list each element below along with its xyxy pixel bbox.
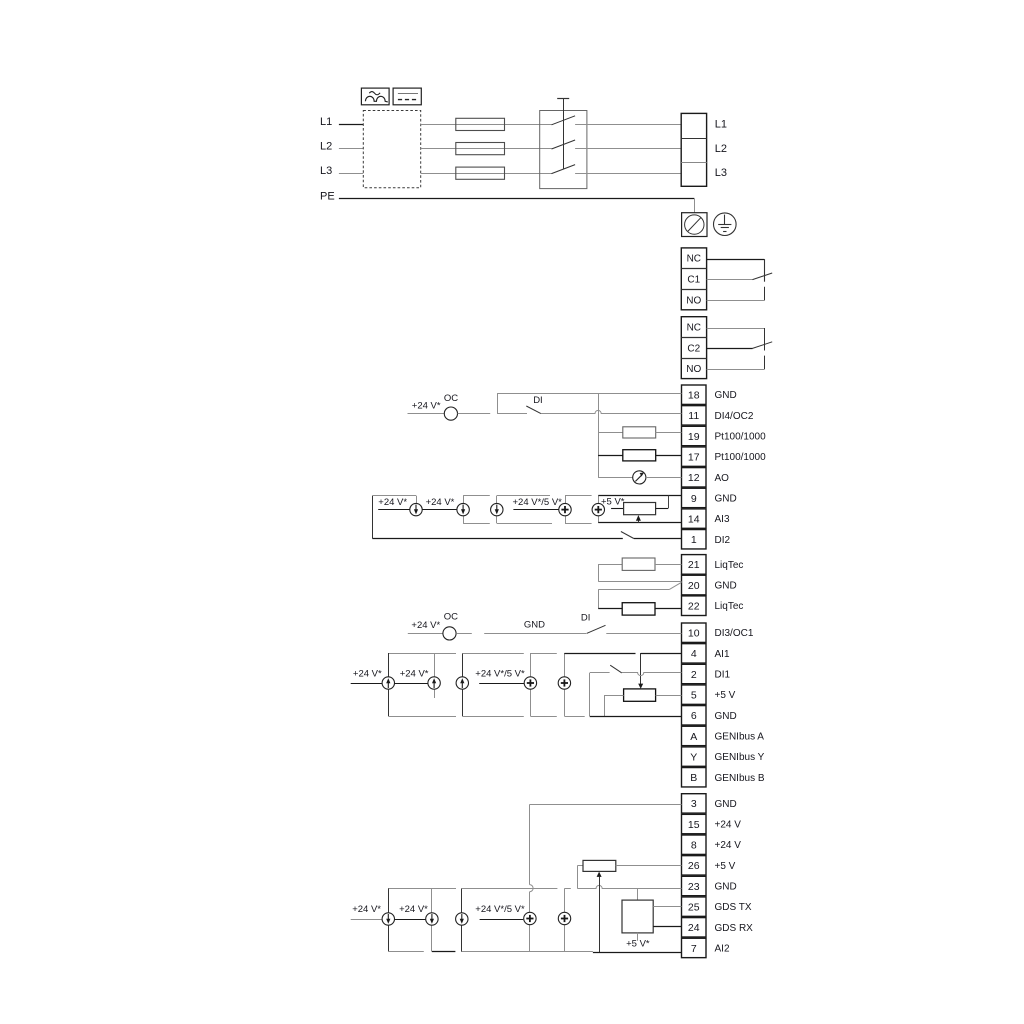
svg-text:+24 V*: +24 V*: [412, 400, 441, 411]
svg-text:10: 10: [688, 628, 700, 640]
svg-text:+24 V: +24 V: [715, 820, 742, 831]
svg-text:L3: L3: [320, 165, 332, 177]
svg-text:GDS RX: GDS RX: [715, 923, 754, 934]
svg-text:14: 14: [688, 513, 700, 525]
svg-text:3: 3: [691, 798, 697, 810]
svg-text:20: 20: [688, 580, 700, 592]
svg-text:L2: L2: [715, 143, 727, 155]
svg-text:23: 23: [688, 881, 700, 893]
svg-text:+24 V*/5 V*: +24 V*/5 V*: [513, 497, 563, 508]
svg-text:GENIbus A: GENIbus A: [715, 731, 765, 742]
svg-text:17: 17: [688, 451, 700, 463]
svg-text:L2: L2: [320, 140, 332, 152]
svg-text:A: A: [690, 731, 697, 743]
svg-text:DI1: DI1: [715, 670, 731, 681]
svg-text:C2: C2: [687, 343, 700, 354]
svg-text:25: 25: [688, 901, 700, 913]
svg-text:+5 V: +5 V: [715, 861, 736, 872]
svg-text:AI2: AI2: [715, 943, 730, 954]
svg-text:15: 15: [688, 819, 700, 831]
svg-text:5: 5: [691, 689, 697, 701]
svg-text:19: 19: [688, 431, 700, 443]
svg-text:NC: NC: [687, 254, 701, 265]
svg-text:OC: OC: [444, 611, 458, 622]
svg-text:NC: NC: [687, 323, 701, 334]
svg-text:C1: C1: [687, 275, 700, 286]
svg-text:GND: GND: [715, 493, 737, 504]
svg-text:12: 12: [688, 472, 700, 484]
svg-text:+24 V*: +24 V*: [352, 904, 381, 915]
svg-text:1: 1: [691, 534, 697, 546]
svg-text:GND: GND: [524, 619, 545, 630]
svg-text:+24 V*: +24 V*: [399, 904, 428, 915]
svg-text:GDS TX: GDS TX: [715, 902, 752, 913]
svg-text:GND: GND: [715, 882, 737, 893]
svg-text:+24 V*/5 V*: +24 V*/5 V*: [475, 904, 525, 915]
svg-text:AI3: AI3: [715, 514, 730, 525]
svg-text:PE: PE: [320, 191, 335, 203]
svg-text:GND: GND: [715, 390, 737, 401]
svg-text:L3: L3: [715, 167, 727, 179]
svg-text:L1: L1: [320, 116, 332, 128]
svg-text:+24 V*/5 V*: +24 V*/5 V*: [475, 669, 525, 680]
svg-text:24: 24: [688, 922, 700, 934]
svg-text:18: 18: [688, 390, 700, 402]
svg-text:Y: Y: [690, 751, 697, 763]
svg-text:8: 8: [691, 840, 697, 852]
svg-text:21: 21: [688, 559, 700, 571]
svg-text:DI2: DI2: [715, 535, 731, 546]
svg-text:Pt100/1000: Pt100/1000: [715, 452, 767, 463]
svg-text:GENIbus Y: GENIbus Y: [715, 752, 765, 763]
svg-text:+5 V: +5 V: [715, 690, 736, 701]
svg-text:+5 V*: +5 V*: [601, 497, 625, 508]
svg-text:+24 V*: +24 V*: [411, 620, 440, 631]
svg-text:GND: GND: [715, 799, 737, 810]
svg-text:Pt100/1000: Pt100/1000: [715, 432, 767, 443]
svg-text:6: 6: [691, 710, 697, 722]
svg-text:GND: GND: [715, 581, 737, 592]
svg-text:2: 2: [691, 669, 697, 681]
svg-text:LiqTec: LiqTec: [715, 601, 744, 612]
svg-text:OC: OC: [444, 393, 458, 404]
svg-text:DI: DI: [581, 612, 591, 623]
svg-text:DI3/OC1: DI3/OC1: [715, 628, 754, 639]
svg-text:AO: AO: [715, 473, 730, 484]
svg-text:NO: NO: [686, 295, 701, 306]
svg-text:B: B: [690, 772, 697, 784]
svg-text:+24 V: +24 V: [715, 840, 742, 851]
svg-text:4: 4: [691, 648, 697, 660]
svg-text:26: 26: [688, 860, 700, 872]
svg-text:9: 9: [691, 493, 697, 505]
svg-text:AI1: AI1: [715, 649, 730, 660]
svg-text:GND: GND: [715, 711, 737, 722]
svg-text:+5 V*: +5 V*: [626, 939, 650, 950]
svg-text:+24 V*: +24 V*: [426, 497, 455, 508]
svg-text:+24 V*: +24 V*: [378, 497, 407, 508]
svg-text:+24 V*: +24 V*: [400, 669, 429, 680]
svg-text:+24 V*: +24 V*: [353, 669, 382, 680]
svg-text:DI: DI: [533, 395, 543, 406]
svg-text:DI4/OC2: DI4/OC2: [715, 411, 754, 422]
svg-text:L1: L1: [715, 118, 727, 130]
svg-text:GENIbus B: GENIbus B: [715, 773, 765, 784]
svg-text:LiqTec: LiqTec: [715, 560, 744, 571]
svg-text:NO: NO: [686, 364, 701, 375]
svg-text:7: 7: [691, 943, 697, 955]
svg-text:22: 22: [688, 601, 700, 613]
svg-text:11: 11: [688, 410, 699, 422]
